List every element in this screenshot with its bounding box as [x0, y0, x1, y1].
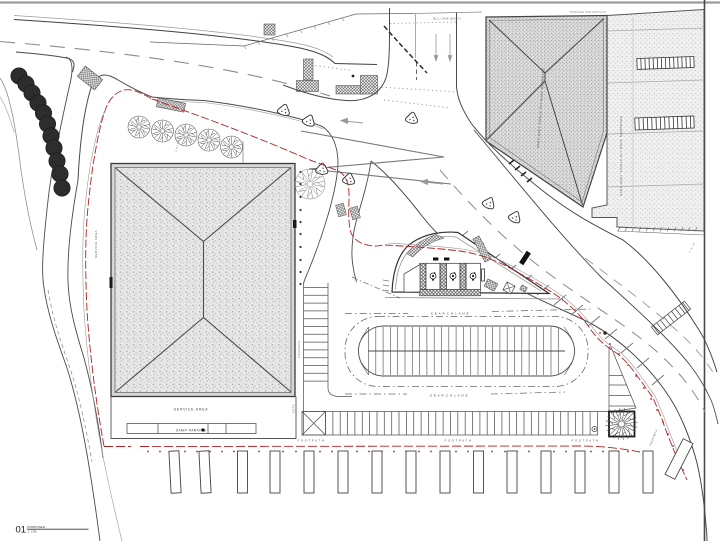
svg-text:FOOTPATH: FOOTPATH — [297, 340, 301, 358]
svg-text:1 : 1750: 1 : 1750 — [28, 530, 38, 533]
svg-text:01: 01 — [16, 525, 27, 536]
svg-text:DARK GREY SINGLE PLY ROOF MEMB: DARK GREY SINGLE PLY ROOF MEMBRANE — [619, 116, 623, 196]
svg-text:F O O T P A T H: F O O T P A T H — [298, 439, 325, 443]
svg-text:PROPOSED: PROPOSED — [28, 525, 45, 529]
svg-text:AIR: AIR — [489, 291, 493, 294]
svg-text:SPRINKLER TANK AND PLANT: SPRINKLER TANK AND PLANT — [570, 11, 607, 14]
svg-text:S E A R C H L A N E: S E A R C H L A N E — [431, 312, 469, 316]
svg-text:SERVICE AREA: SERVICE AREA — [174, 408, 209, 412]
svg-text:MILL LANE (B5207): MILL LANE (B5207) — [433, 17, 461, 21]
svg-text:F O O T P A T H: F O O T P A T H — [572, 439, 599, 443]
svg-text:S E A R C H L A N E: S E A R C H L A N E — [430, 394, 468, 398]
svg-text:F O O T P A T H: F O O T P A T H — [445, 439, 472, 443]
svg-text:GATE: GATE — [292, 404, 296, 413]
svg-text:SERVICE AREA: SERVICE AREA — [94, 230, 98, 258]
